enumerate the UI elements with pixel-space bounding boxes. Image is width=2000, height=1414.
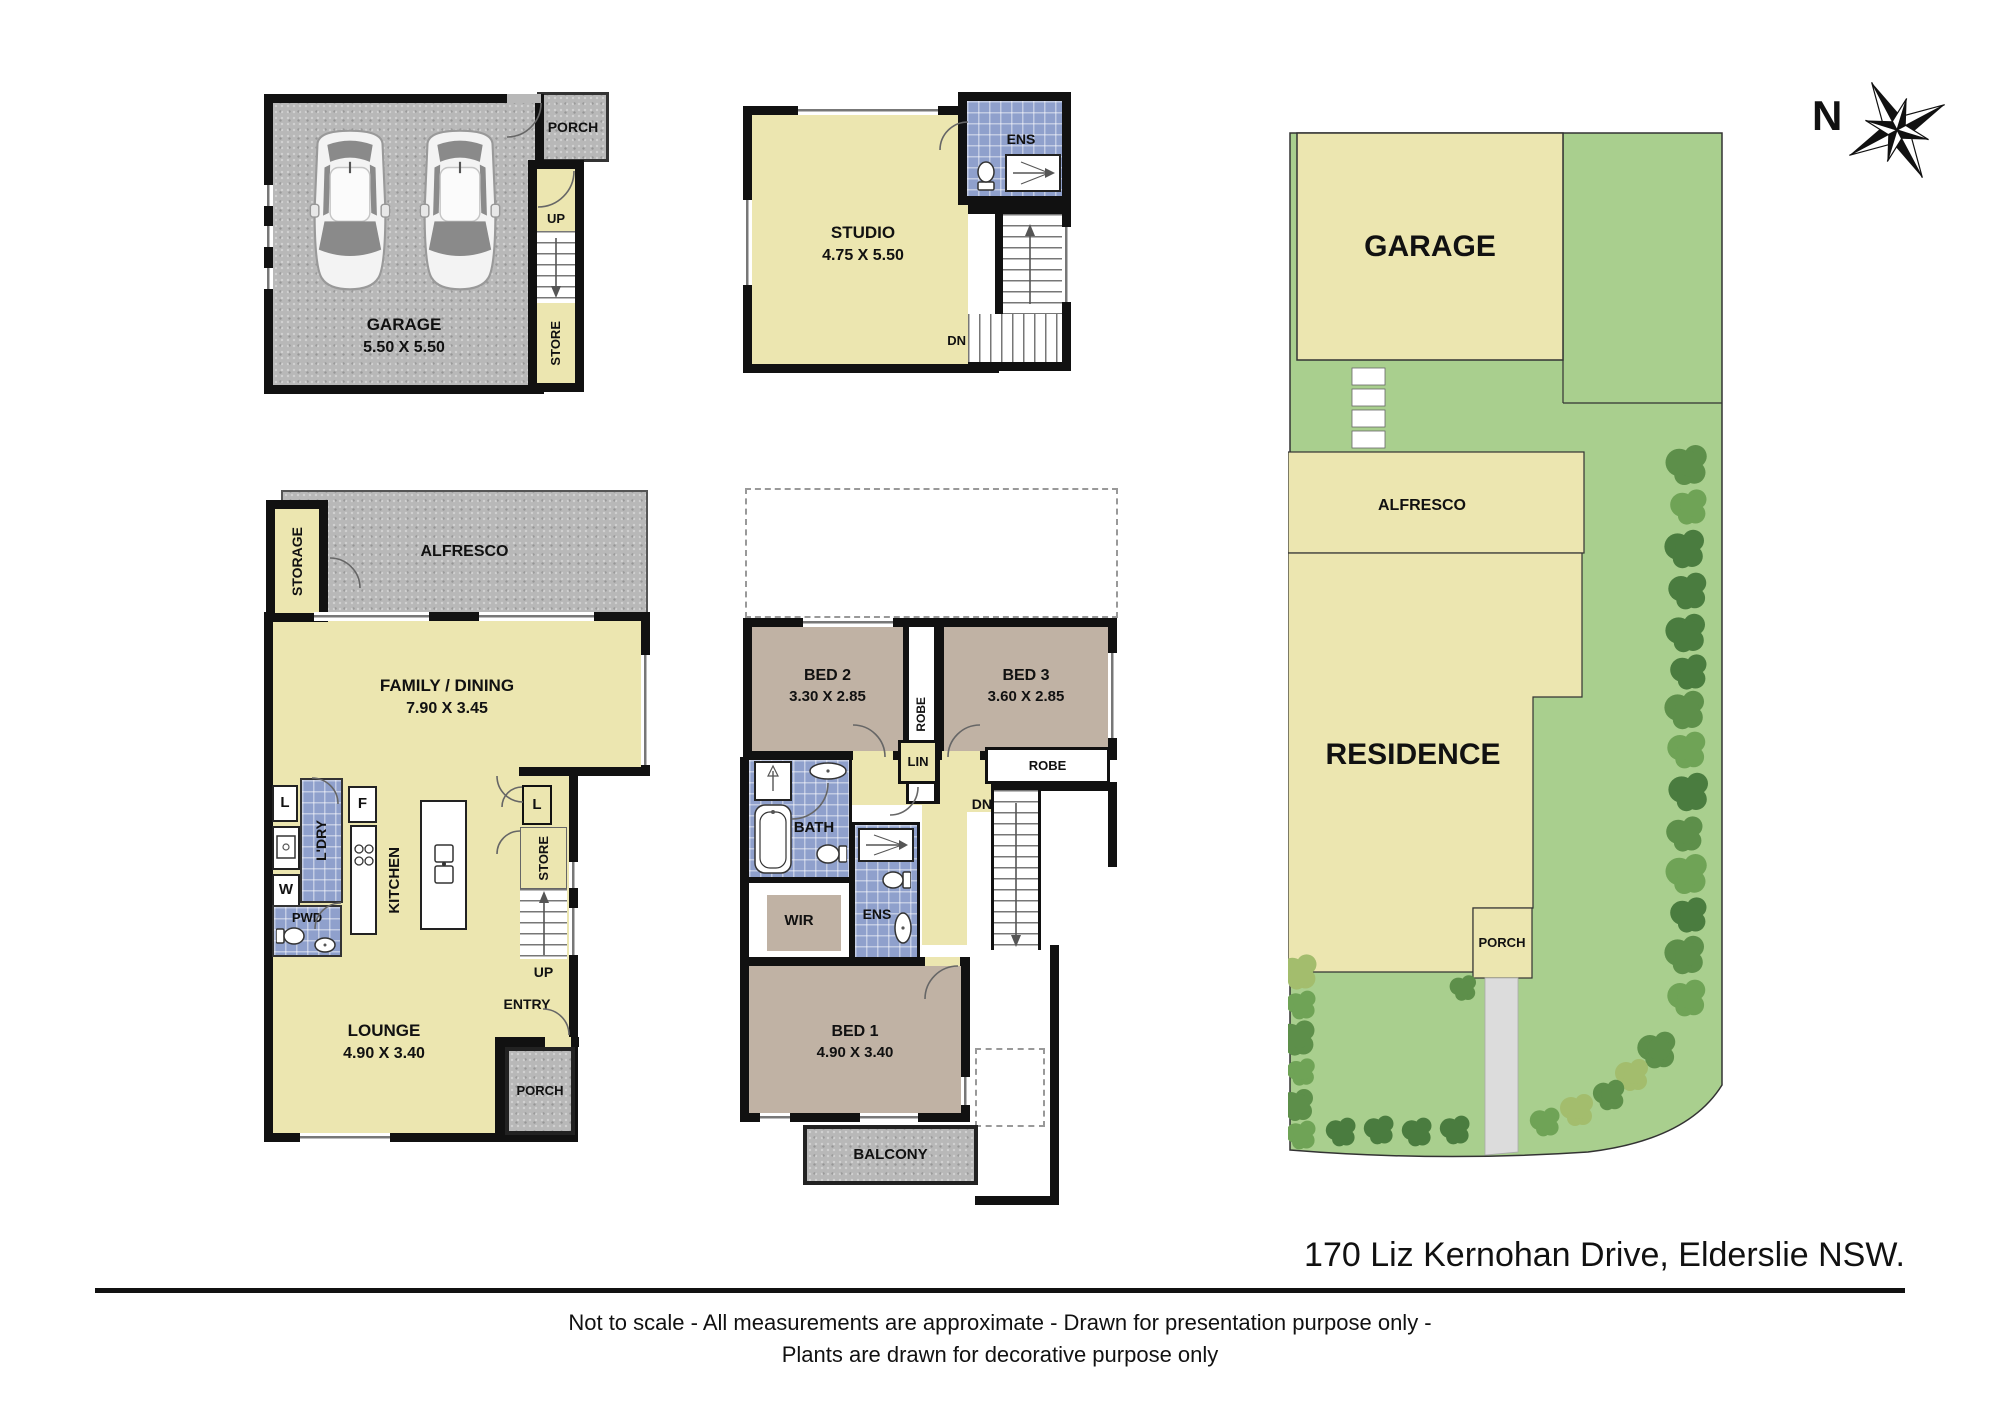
garage-porch-label: PORCH — [537, 92, 609, 162]
toilet-fixture — [881, 869, 911, 891]
garage-window — [264, 185, 273, 206]
studio-stairwell — [968, 205, 1071, 371]
ensuite: ENS — [852, 822, 920, 962]
linen-cupboard: L — [272, 785, 298, 822]
studio-dn-label: DN — [928, 332, 966, 350]
kitchen-label-wrap: KITCHEN — [382, 815, 408, 945]
shower-fixture — [1005, 154, 1061, 192]
bed3-label: BED 3 3.60 X 2.85 — [944, 665, 1108, 707]
family-lower-wall — [519, 767, 650, 776]
compass-star-icon — [1824, 60, 1970, 200]
sink-fixture — [432, 843, 456, 887]
family-dining-dims: 7.90 X 3.45 — [322, 698, 572, 720]
site-porch-label: PORCH — [1479, 935, 1526, 950]
bathroom: BATH — [740, 757, 852, 880]
laundry-label: L'DRY — [312, 820, 331, 861]
basin-fixture — [313, 937, 337, 953]
studio-room-dims: 4.75 X 5.50 — [773, 245, 953, 267]
garage-up-label: UP — [537, 210, 575, 228]
toilet-fixture — [276, 925, 306, 947]
studio-window — [798, 106, 938, 115]
kitchen-bench — [350, 825, 377, 935]
site-alfresco-label: ALFRESCO — [1378, 497, 1466, 514]
site-plan: .t1{fill:#4a7c3f}.t2{fill:#5d8f4a}.t3{fi… — [1288, 100, 1724, 1165]
kitchen-island — [420, 800, 467, 930]
entry-door-opening — [545, 1037, 571, 1047]
bed2-door-opening — [853, 751, 893, 760]
site-residence-label: RESIDENCE — [1325, 738, 1500, 771]
garage-store-area: STORE — [537, 303, 575, 383]
entry-label: ENTRY — [482, 995, 572, 1014]
bed3-room: BED 3 3.60 X 2.85 — [935, 618, 1117, 760]
garage-floorplan: PORCH GARAGE 5. — [264, 92, 614, 394]
stair-window — [569, 862, 578, 888]
studio-stair-window — [1062, 227, 1071, 302]
upper-stairs — [991, 790, 1041, 950]
void-dashed-outline — [975, 1048, 1045, 1127]
bed2-robe-label: ROBE — [913, 697, 929, 732]
powder-label: PWD — [274, 909, 340, 927]
bed3-dims: 3.60 X 2.85 — [944, 687, 1108, 707]
ground-store-label: STORE — [535, 836, 553, 881]
tree-icon — [1288, 1089, 1313, 1121]
bed3-name: BED 3 — [944, 665, 1108, 687]
laundry-tub — [272, 826, 300, 870]
car-icon — [305, 125, 395, 295]
bed1-window — [760, 1113, 790, 1122]
garage-room-name: GARAGE — [273, 314, 535, 337]
bed2-room: BED 2 3.30 X 2.85 — [743, 618, 912, 760]
garage-stairs — [537, 231, 575, 303]
family-dining-name: FAMILY / DINING — [322, 675, 572, 698]
garage-window — [264, 268, 273, 289]
ens-label: ENS — [855, 905, 899, 924]
bath-label: BATH — [779, 818, 849, 838]
kitchen-label: KITCHEN — [385, 847, 405, 914]
lounge-window — [300, 1133, 390, 1142]
disclaimer-line-1: Not to scale - All measurements are appr… — [0, 1310, 2000, 1336]
tree-icon — [1288, 954, 1317, 989]
toilet-fixture — [815, 842, 847, 866]
studio-room-label: STUDIO 4.75 X 5.50 — [773, 222, 953, 267]
family-dining-label: FAMILY / DINING 7.90 X 3.45 — [322, 675, 572, 720]
powder-room: PWD — [272, 905, 342, 957]
bed2-dims: 3.30 X 2.85 — [752, 687, 903, 707]
studio-ensuite-label: ENS — [991, 130, 1051, 149]
address-title: 170 Liz Kernohan Drive, Elderslie NSW. — [900, 1236, 1905, 1275]
garage-room-dims: 5.50 X 5.50 — [273, 337, 535, 359]
ground-linen-closet: L — [522, 785, 552, 825]
disclaimer-line-2: Plants are drawn for decorative purpose … — [0, 1342, 2000, 1368]
lounge-name: LOUNGE — [284, 1020, 484, 1043]
footer-divider — [95, 1288, 1905, 1293]
bed1-room: BED 1 4.90 X 3.40 — [740, 957, 970, 1122]
shower-fixture — [858, 828, 914, 862]
garage-room-label: GARAGE 5.50 X 5.50 — [273, 314, 535, 359]
wir-label: WIR — [749, 883, 849, 959]
washer: W — [272, 874, 300, 907]
ground-up-label: UP — [516, 963, 571, 982]
bed2-label: BED 2 3.30 X 2.85 — [752, 665, 903, 707]
bed1-label: BED 1 4.90 X 3.40 — [749, 1021, 961, 1063]
driveway — [1485, 978, 1518, 1155]
bed3-window — [1108, 653, 1117, 738]
floorplan-page: PORCH GARAGE 5. — [0, 0, 2000, 1414]
laundry-room: L'DRY — [300, 778, 343, 903]
toilet-fixture — [975, 160, 997, 192]
site-garage-label: GARAGE — [1364, 230, 1496, 263]
bed1-door-opening — [925, 957, 960, 966]
stair-window — [569, 908, 578, 955]
alfresco-label: ALFRESCO — [281, 490, 648, 614]
balcony: BALCONY — [803, 1125, 978, 1185]
compass-rose: N — [1790, 60, 1970, 200]
ground-floorplan: ALFRESCO STORAGE FAMILY / DINING 7.90 X … — [264, 485, 664, 1175]
studio-room-name: STUDIO — [773, 222, 953, 245]
bed3-door-opening — [942, 751, 980, 760]
ground-stairs — [520, 889, 567, 959]
garage-door-opening — [507, 94, 541, 103]
compass-north-label: N — [1812, 92, 1842, 139]
porch-side-wall — [495, 1037, 505, 1135]
bathtub-fixture — [754, 804, 792, 874]
ground-porch: PORCH — [505, 1047, 575, 1135]
bed1-dims: 4.90 X 3.40 — [749, 1043, 961, 1063]
tree-icon — [1288, 1020, 1315, 1055]
bed1-window — [961, 1077, 970, 1105]
fridge: F — [348, 786, 377, 823]
bed3-robe: ROBE — [985, 747, 1110, 784]
garage-store-label: STORE — [547, 321, 565, 366]
garage-window — [264, 226, 273, 247]
car-icon — [415, 125, 505, 295]
family-window — [641, 655, 650, 765]
bed1-name: BED 1 — [749, 1021, 961, 1043]
wir-room: WIR — [740, 880, 852, 962]
roof-void-outline — [745, 488, 1118, 618]
bed1-window — [860, 1113, 918, 1122]
lounge-label: LOUNGE 4.90 X 3.40 — [284, 1020, 484, 1065]
lounge-dims: 4.90 X 3.40 — [284, 1043, 484, 1065]
ground-store: STORE — [520, 827, 567, 889]
shower-fixture — [754, 761, 792, 801]
upper-floorplan: BED 2 3.30 X 2.85 ROBE BED 3 3.60 X 2.85… — [738, 485, 1128, 1260]
bed2-window — [803, 618, 893, 627]
studio-window — [743, 200, 752, 285]
bed2-name: BED 2 — [752, 665, 903, 687]
upper-linen: LIN — [898, 740, 938, 784]
studio-floorplan: STUDIO 4.75 X 5.50 ENS DN — [743, 92, 1080, 373]
basin-fixture — [807, 761, 849, 781]
upper-dn-label: DN — [950, 795, 992, 814]
cooktop-fixture — [352, 841, 375, 881]
